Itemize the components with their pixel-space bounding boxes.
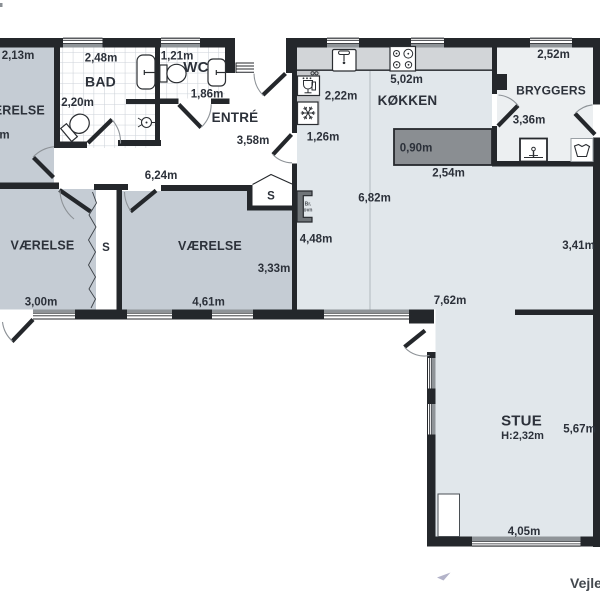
svg-text:KØKKEN: KØKKEN (378, 93, 438, 108)
svg-text:ENTRÉ: ENTRÉ (212, 110, 259, 125)
svg-text:0,90m: 0,90m (400, 143, 433, 155)
svg-text:2,54m: 2,54m (432, 168, 465, 180)
svg-text:3,58m: 3,58m (237, 135, 270, 147)
svg-text:6,82m: 6,82m (358, 193, 391, 205)
svg-text:1,86m: 1,86m (191, 89, 224, 101)
svg-text:S: S (102, 242, 110, 254)
svg-text:4,61m: 4,61m (192, 297, 225, 309)
svg-text:2,22m: 2,22m (325, 91, 358, 103)
svg-text:WC: WC (183, 59, 208, 76)
svg-text:2,20m: 2,20m (61, 97, 94, 109)
svg-text:H:2,32m: H:2,32m (501, 430, 544, 442)
svg-text:2,52m: 2,52m (537, 49, 570, 61)
svg-text:4,48m: 4,48m (300, 234, 333, 246)
svg-text:4,05m: 4,05m (508, 526, 541, 538)
svg-text:STUE: STUE (501, 413, 542, 430)
svg-text:3,33m: 3,33m (258, 263, 291, 275)
svg-text:VÆRELSE: VÆRELSE (0, 104, 45, 118)
svg-text:7,62m: 7,62m (434, 295, 467, 307)
svg-text:BAD: BAD (85, 74, 116, 90)
svg-text:1,26m: 1,26m (307, 132, 340, 144)
svg-text:5,02m: 5,02m (390, 74, 423, 86)
svg-text:Vejlev: Vejlev (570, 575, 600, 591)
svg-text:6,24m: 6,24m (145, 170, 178, 182)
svg-text:VÆRELSE: VÆRELSE (178, 239, 242, 253)
svg-text:S: S (267, 191, 275, 203)
svg-text:3,00m: 3,00m (25, 297, 58, 309)
svg-text:2,13m: 2,13m (2, 50, 35, 62)
svg-text:VÆRELSE: VÆRELSE (11, 239, 75, 253)
svg-text:BRYGGERS: BRYGGERS (516, 84, 586, 98)
svg-text:3,41m: 3,41m (562, 240, 595, 252)
svg-text:2,48m: 2,48m (85, 53, 118, 65)
svg-text:m: m (0, 130, 10, 142)
svg-text:5,67m: 5,67m (563, 424, 596, 436)
svg-text:ovn: ovn (304, 208, 313, 214)
svg-text:3,36m: 3,36m (513, 115, 546, 127)
